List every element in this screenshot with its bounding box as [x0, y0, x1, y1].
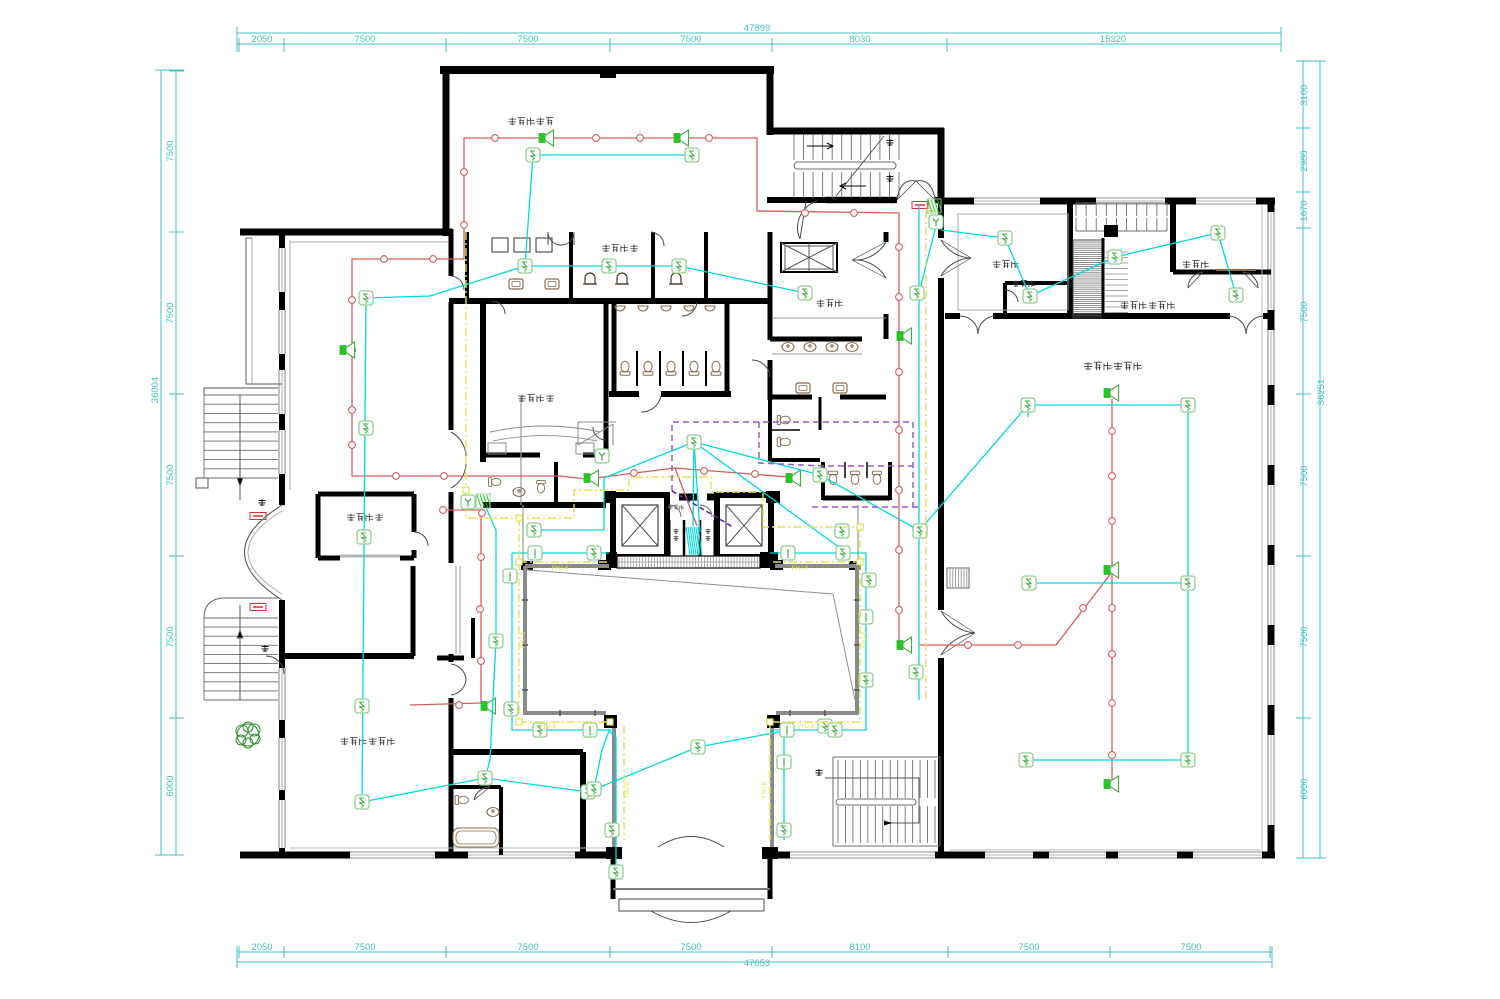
svg-text:7500: 7500 [517, 34, 538, 45]
svg-text:47653: 47653 [744, 958, 770, 969]
svg-text:7500: 7500 [165, 626, 176, 647]
svg-text:FHJ-8: FHJ-8 [625, 781, 631, 798]
svg-text:7500: 7500 [1018, 942, 1039, 953]
svg-text:7500: 7500 [165, 302, 176, 323]
svg-text:7500: 7500 [354, 34, 375, 45]
svg-text:36004: 36004 [150, 377, 161, 403]
svg-text:7500: 7500 [165, 140, 176, 161]
svg-text:FHJ-8: FHJ-8 [762, 781, 768, 798]
svg-text:6000: 6000 [1299, 778, 1310, 799]
svg-text:7500: 7500 [1299, 301, 1310, 322]
svg-text:8030: 8030 [849, 34, 870, 45]
svg-text:7500: 7500 [1180, 942, 1201, 953]
svg-text:7500: 7500 [354, 942, 375, 953]
svg-text:1670: 1670 [1299, 200, 1310, 221]
svg-text:FHJ-8: FHJ-8 [540, 724, 557, 730]
svg-text:6000: 6000 [165, 775, 176, 796]
svg-text:7500: 7500 [517, 942, 538, 953]
svg-text:7500: 7500 [680, 942, 701, 953]
svg-text:36251: 36251 [1316, 379, 1327, 405]
svg-text:FHJ-8: FHJ-8 [862, 631, 868, 648]
svg-text:FHJ-8: FHJ-8 [552, 566, 569, 572]
svg-text:7500: 7500 [165, 464, 176, 485]
svg-text:8100: 8100 [849, 942, 870, 953]
svg-text:FHJ-8: FHJ-8 [792, 566, 809, 572]
svg-text:3100: 3100 [1299, 84, 1310, 105]
svg-text:FHJ-8: FHJ-8 [521, 631, 527, 648]
svg-text:47899: 47899 [744, 23, 770, 34]
svg-text:2050: 2050 [251, 942, 272, 953]
svg-text:7500: 7500 [680, 34, 701, 45]
svg-text:FHJ-8: FHJ-8 [798, 724, 815, 730]
svg-text:7500: 7500 [1299, 626, 1310, 647]
svg-text:15320: 15320 [1100, 34, 1126, 45]
svg-text:7500: 7500 [1299, 465, 1310, 486]
svg-text:2980: 2980 [1299, 150, 1310, 171]
svg-text:2050: 2050 [251, 34, 272, 45]
